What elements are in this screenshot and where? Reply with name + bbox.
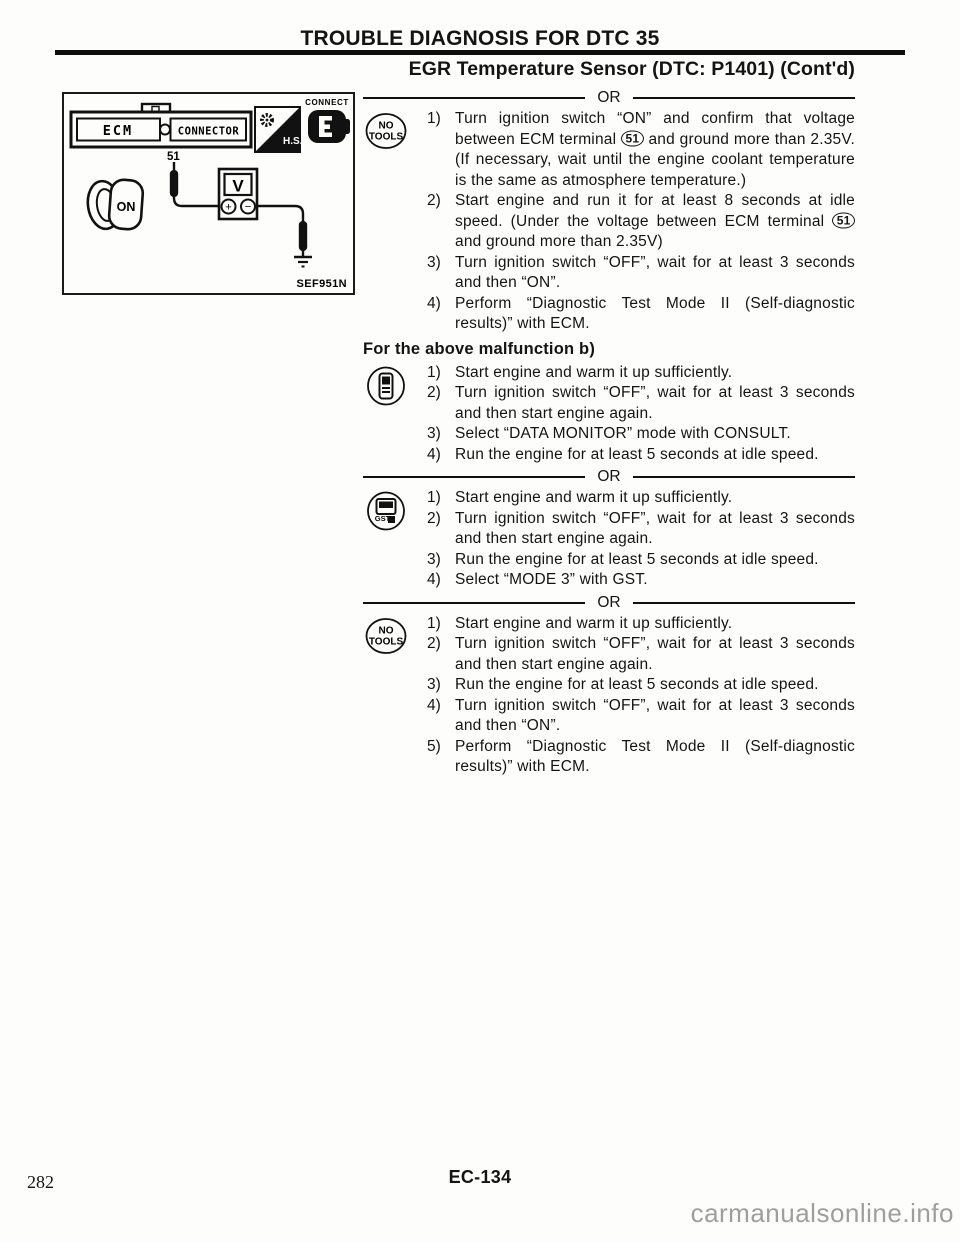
procedure-no-tools-1: NO TOOLS 1) Turn ignition switch “ON” an… — [363, 109, 855, 335]
page-title: TROUBLE DIAGNOSIS FOR DTC 35 — [0, 27, 960, 51]
procedure-step: 3) Select “DATA MONITOR” mode with CONSU… — [427, 424, 855, 445]
page-code: EC-134 — [0, 1167, 960, 1188]
plus-terminal: + — [225, 202, 231, 214]
ecm-label: ECM — [103, 123, 133, 139]
voltmeter-v-label: V — [232, 177, 244, 196]
ignition-key-on-icon: ON — [85, 179, 144, 231]
svg-text:TOOLS: TOOLS — [369, 132, 404, 143]
svg-text:TOOLS: TOOLS — [369, 636, 404, 647]
procedure-step: 3) Turn ignition switch “OFF”, wait for … — [427, 253, 855, 294]
or-label: OR — [585, 595, 632, 611]
section-title: EGR Temperature Sensor (DTC: P1401) (Con… — [363, 58, 855, 81]
probe-tip-left — [170, 170, 178, 197]
or-divider: OR — [363, 89, 855, 107]
procedure-step: 1) Start engine and warm it up sufficien… — [427, 614, 855, 635]
procedure-step: 1) Start engine and warm it up sufficien… — [427, 488, 855, 509]
procedure-step: 4) Turn ignition switch “OFF”, wait for … — [427, 696, 855, 737]
or-label: OR — [585, 469, 632, 485]
svg-text:NO: NO — [379, 121, 394, 132]
procedure-step: 2) Turn ignition switch “OFF”, wait for … — [427, 383, 855, 424]
wiring-check-figure: ECM CONNECTOR 51 V + − — [62, 92, 355, 295]
header-rule — [55, 50, 905, 55]
malfunction-heading: For the above malfunction b) — [363, 340, 855, 359]
voltmeter: V + − — [219, 169, 257, 219]
procedures-column: OR NO TOOLS 1) Turn ignition switch “ON”… — [363, 86, 855, 778]
no-tools-icon: NO TOOLS — [365, 617, 407, 662]
connect-icon: CONNECT — [305, 98, 350, 143]
procedure-no-tools-2: NO TOOLS 1) Start engine and warm it up … — [363, 614, 855, 778]
procedure-step: 4) Perform “Diagnostic Test Mode II (Sel… — [427, 294, 855, 335]
procedure-step: 2) Turn ignition switch “OFF”, wait for … — [427, 634, 855, 675]
probe-tip-right — [299, 221, 307, 251]
or-divider: OR — [363, 594, 855, 612]
no-tools-icon: NO TOOLS — [365, 112, 407, 157]
procedure-step: 3) Run the engine for at least 5 seconds… — [427, 550, 855, 571]
svg-text:NO: NO — [379, 625, 394, 636]
terminal-51-label: 51 — [167, 151, 180, 163]
procedure-step: 2) Turn ignition switch “OFF”, wait for … — [427, 509, 855, 550]
gst-icon: GST — [365, 491, 407, 538]
terminal-51-badge: 51 — [621, 130, 644, 147]
procedure-step: 5) Perform “Diagnostic Test Mode II (Sel… — [427, 737, 855, 778]
procedure-step: 3) Run the engine for at least 5 seconds… — [427, 675, 855, 696]
or-divider: OR — [363, 468, 855, 486]
connector-label: CONNECTOR — [178, 126, 240, 138]
or-label: OR — [585, 90, 632, 106]
procedure-step: 4) Select “MODE 3” with GST. — [427, 570, 855, 591]
hs-icon: H.S. — [255, 107, 303, 152]
terminal-51-badge: 51 — [832, 212, 855, 229]
watermark: carmanualsonline.info — [691, 1198, 954, 1229]
procedure-step: 1) Turn ignition switch “ON” and confirm… — [427, 109, 855, 191]
connect-label: CONNECT — [305, 98, 349, 107]
consult-icon — [365, 366, 407, 413]
procedure-gst: GST 1) Start engine and warm it up suffi… — [363, 488, 855, 591]
procedure-step: 4) Run the engine for at least 5 seconds… — [427, 445, 855, 466]
wiring-check-diagram: ECM CONNECTOR 51 V + − — [64, 94, 353, 293]
procedure-consult: 1) Start engine and warm it up sufficien… — [363, 363, 855, 466]
procedure-step: 1) Start engine and warm it up sufficien… — [427, 363, 855, 384]
ground-symbol — [294, 257, 312, 267]
procedure-step: 2) Start engine and run it for at least … — [427, 191, 855, 253]
minus-terminal: − — [245, 201, 251, 213]
hs-label: H.S. — [283, 136, 303, 147]
ecm-connector: ECM CONNECTOR — [71, 104, 251, 147]
key-on-label: ON — [117, 200, 136, 214]
figure-code: SEF951N — [297, 278, 348, 290]
